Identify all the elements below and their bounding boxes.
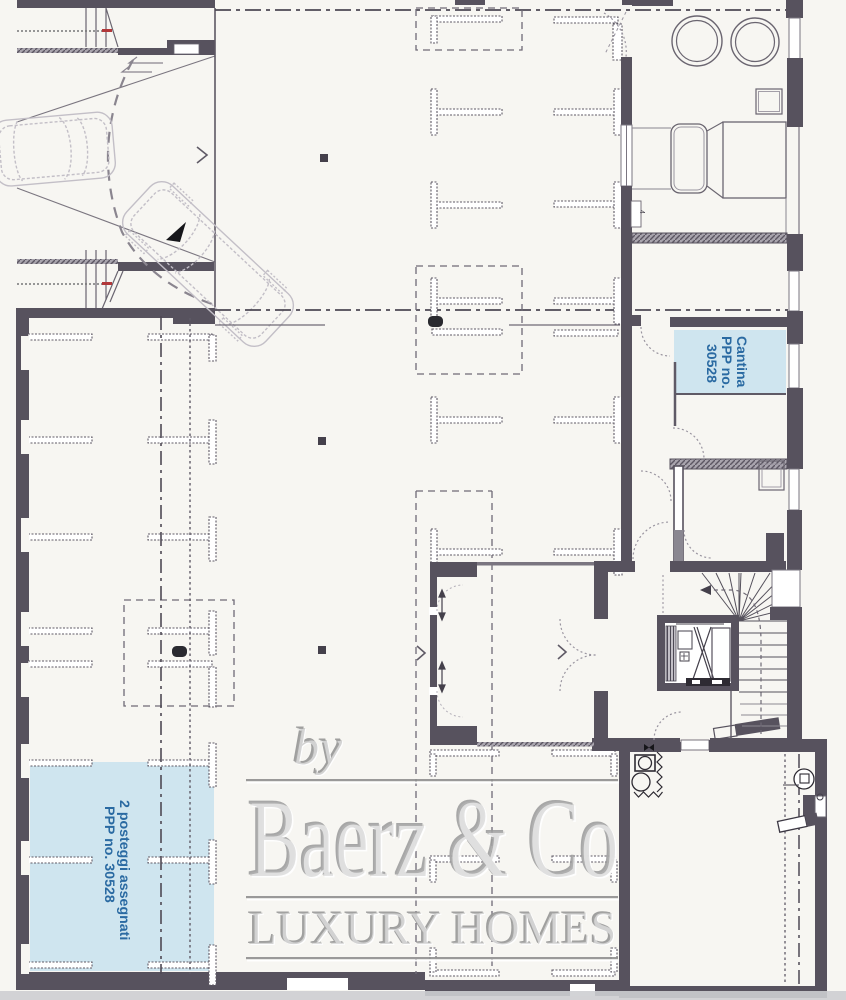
svg-text:Baerz & Co: Baerz & Co	[248, 777, 618, 901]
svg-text:CantinaPPP no.30528: CantinaPPP no.30528	[704, 336, 750, 389]
svg-text:4: 4	[638, 210, 645, 214]
svg-text:by: by	[293, 719, 343, 776]
svg-text:LUXURY HOMES: LUXURY HOMES	[248, 902, 616, 955]
